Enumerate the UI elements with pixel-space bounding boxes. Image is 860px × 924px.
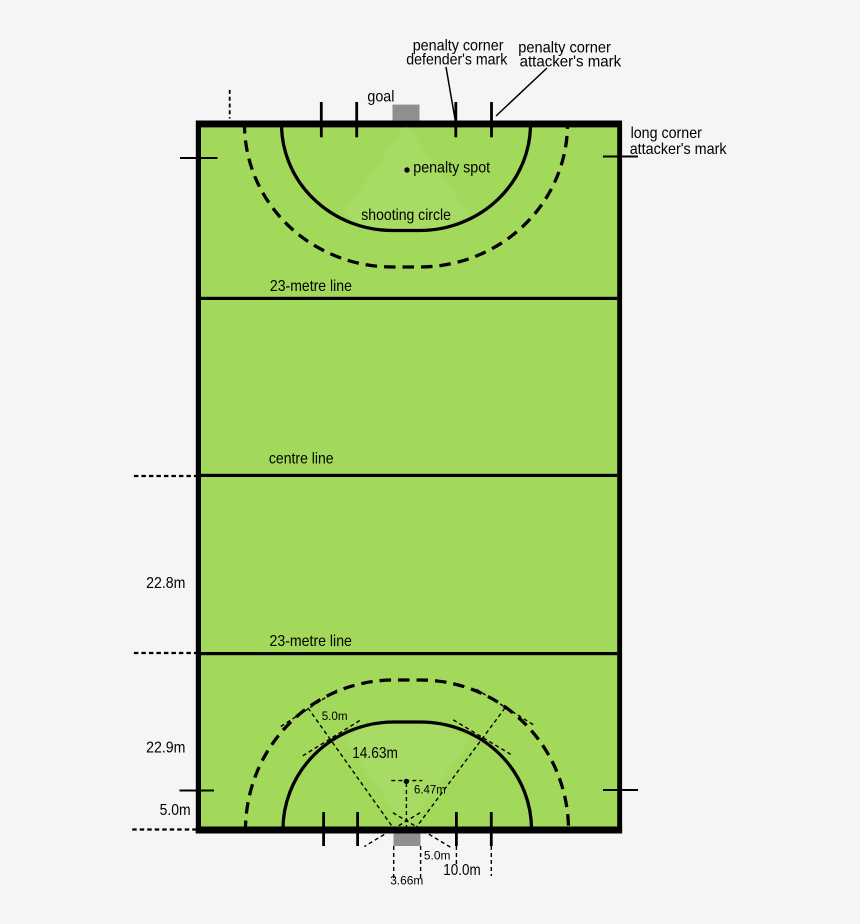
svg-text:goal: goal: [367, 88, 394, 105]
svg-text:23-metre line: 23-metre line: [270, 278, 352, 295]
svg-text:attacker's mark: attacker's mark: [630, 141, 728, 158]
svg-text:centre line: centre line: [269, 450, 334, 467]
svg-text:penalty spot: penalty spot: [413, 160, 490, 177]
svg-text:10.0m: 10.0m: [443, 862, 480, 879]
svg-text:5.0m: 5.0m: [160, 802, 191, 819]
svg-text:5.0m: 5.0m: [424, 848, 451, 862]
svg-text:22.8m: 22.8m: [146, 575, 185, 592]
svg-text:attacker's mark: attacker's mark: [520, 54, 623, 71]
svg-text:defender's mark: defender's mark: [406, 51, 508, 68]
svg-text:23-metre line: 23-metre line: [270, 633, 352, 650]
svg-text:long corner: long corner: [631, 125, 703, 142]
svg-text:5.0m: 5.0m: [322, 709, 348, 723]
svg-text:shooting circle: shooting circle: [361, 207, 451, 224]
svg-text:3.66m: 3.66m: [390, 874, 423, 888]
svg-text:22.9m: 22.9m: [146, 740, 185, 757]
svg-text:6.47m: 6.47m: [414, 782, 446, 796]
svg-text:14.63m: 14.63m: [352, 745, 398, 762]
